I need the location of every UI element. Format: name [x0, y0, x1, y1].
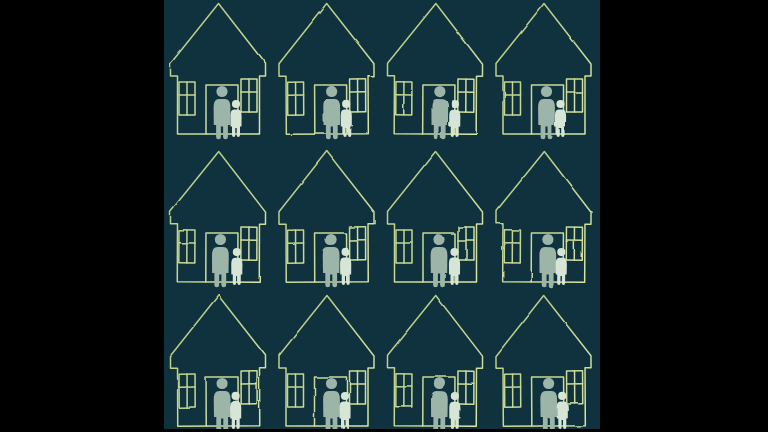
- child-figure-icon: [556, 248, 567, 285]
- adult-figure-icon: [323, 378, 340, 429]
- house-illustration: [387, 295, 482, 429]
- house-illustration: [387, 3, 483, 139]
- house-illustration: [279, 296, 374, 430]
- adult-figure-icon: [323, 234, 340, 287]
- adult-figure-icon: [540, 378, 557, 429]
- child-figure-icon: [230, 100, 241, 137]
- house-illustration: [279, 151, 374, 287]
- house-illustration: [388, 152, 483, 288]
- house-illustration: [496, 4, 591, 140]
- house-illustration: [496, 295, 592, 429]
- child-figure-icon: [555, 100, 566, 137]
- letterbox-right-bar: [600, 0, 768, 432]
- adult-figure-icon: [431, 378, 448, 429]
- video-frame: [0, 0, 768, 432]
- adult-figure-icon: [538, 86, 555, 139]
- adult-figure-icon: [214, 378, 231, 429]
- adult-figure-icon: [214, 86, 231, 139]
- adult-figure-icon: [212, 234, 229, 287]
- adult-figure-icon: [323, 86, 340, 139]
- house-illustration: [170, 295, 265, 429]
- letterbox-left-bar: [0, 0, 164, 432]
- adult-figure-icon: [431, 86, 448, 139]
- house-illustration: [170, 151, 265, 287]
- houses-layer: [170, 3, 591, 429]
- house-illustration: [279, 3, 375, 139]
- house-pattern-artwork: [164, 0, 600, 429]
- child-figure-icon: [230, 392, 241, 429]
- adult-figure-icon: [539, 234, 556, 287]
- house-pattern-canvas: [164, 0, 600, 429]
- house-illustration: [496, 151, 592, 287]
- adult-figure-icon: [431, 234, 448, 287]
- house-illustration: [171, 4, 266, 140]
